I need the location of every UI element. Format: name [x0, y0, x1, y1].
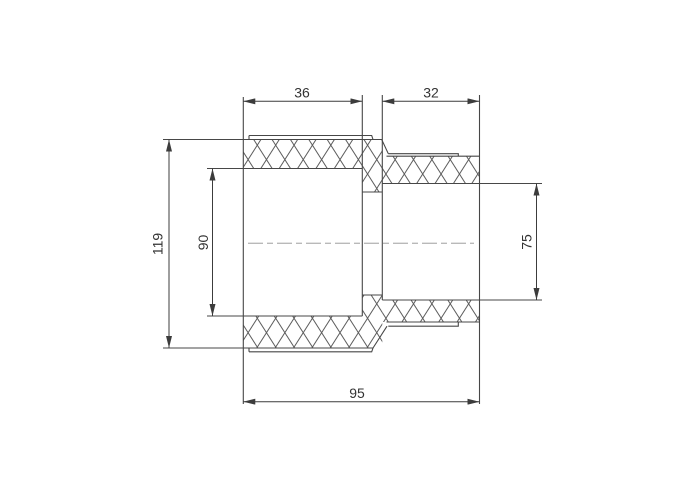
dim-label-overall-length: 95: [349, 385, 365, 401]
outline-left-lip-top: [249, 136, 373, 140]
hatch-right-bottom-wall: [382, 300, 479, 322]
dim-label-right-socket-depth: 32: [423, 85, 439, 101]
outline-left-lip-bottom: [249, 348, 373, 352]
dim-label-left-socket-depth: 36: [294, 85, 310, 101]
hatch-right-top-wall: [382, 156, 479, 183]
dim-label-right-bore: 75: [519, 234, 535, 250]
outline-right-lip-bottom: [388, 322, 458, 326]
dim-label-outer-diameter: 119: [150, 233, 166, 256]
technical-drawing: 36 32 95 119 90 75: [0, 0, 700, 500]
hatch-mid-top-wall: [362, 140, 382, 193]
drawing-page: 36 32 95 119 90 75: [0, 0, 700, 500]
hatch-left-bottom-wall: [243, 316, 362, 348]
hatch-left-top-wall: [243, 140, 362, 169]
hatch-mid-bottom-wall: [362, 295, 382, 348]
dim-label-left-bore: 90: [195, 235, 211, 251]
